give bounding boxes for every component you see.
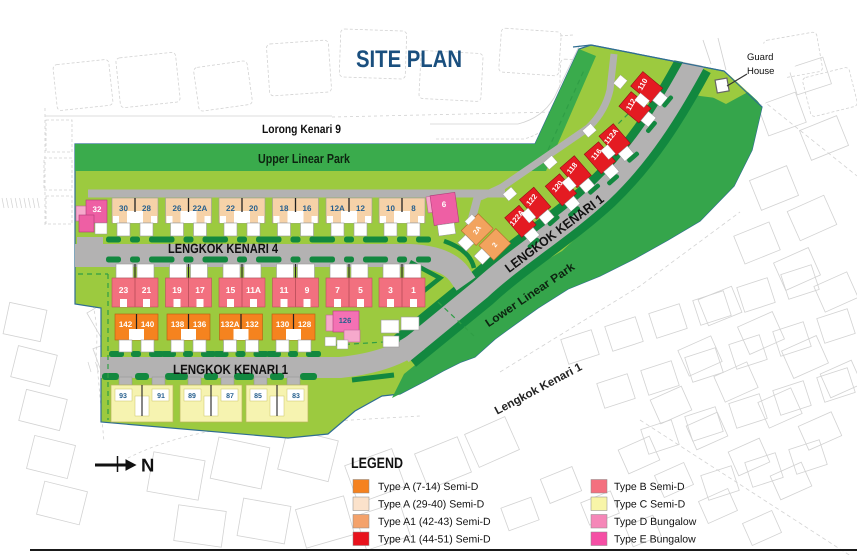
svg-text:LENGKOK KENARI 1: LENGKOK KENARI 1 [173,362,288,377]
svg-text:17: 17 [195,285,205,295]
svg-text:15: 15 [226,285,236,295]
svg-text:3: 3 [388,285,393,295]
svg-text:11A: 11A [246,285,261,295]
svg-text:Type A1 (44-51) Semi-D: Type A1 (44-51) Semi-D [378,534,491,546]
svg-text:Upper Linear Park: Upper Linear Park [258,151,351,166]
svg-text:85: 85 [254,393,262,400]
svg-text:LENGKOK KENARI 4: LENGKOK KENARI 4 [168,241,278,256]
svg-text:132A: 132A [220,320,239,329]
svg-text:8: 8 [411,204,416,213]
svg-text:Type A (7-14) Semi-D: Type A (7-14) Semi-D [378,481,479,493]
svg-text:28: 28 [142,204,151,213]
svg-text:23: 23 [119,285,129,295]
svg-text:Type A1 (42-43) Semi-D: Type A1 (42-43) Semi-D [378,516,491,528]
svg-text:130: 130 [276,320,290,329]
svg-text:12A: 12A [330,204,345,213]
svg-text:1: 1 [411,285,416,295]
svg-text:Type A (29-40) Semi-D: Type A (29-40) Semi-D [378,499,485,511]
svg-text:140: 140 [141,320,155,329]
svg-text:12: 12 [356,204,365,213]
svg-text:87: 87 [226,393,234,400]
svg-text:30: 30 [119,204,128,213]
svg-text:89: 89 [188,393,196,400]
svg-text:126: 126 [339,316,352,325]
svg-text:Type E Bungalow: Type E Bungalow [614,534,696,546]
svg-text:21: 21 [142,285,152,295]
svg-text:6: 6 [442,200,447,209]
svg-text:26: 26 [173,204,182,213]
svg-text:7: 7 [335,285,340,295]
svg-text:19: 19 [172,285,182,295]
svg-text:83: 83 [292,393,300,400]
svg-text:9: 9 [305,285,310,295]
svg-text:16: 16 [303,204,312,213]
svg-text:N: N [141,455,154,476]
svg-text:SITE PLAN: SITE PLAN [356,46,462,73]
svg-text:House: House [747,66,774,77]
svg-text:142: 142 [119,320,133,329]
svg-text:22: 22 [226,204,235,213]
svg-text:128: 128 [298,320,312,329]
svg-text:11: 11 [280,285,289,295]
svg-text:5: 5 [358,285,363,295]
svg-text:22A: 22A [193,204,208,213]
svg-text:Type C Semi-D: Type C Semi-D [614,499,686,511]
svg-text:32: 32 [93,205,102,214]
svg-text:18: 18 [280,204,289,213]
svg-text:Type D Bungalow: Type D Bungalow [614,516,697,528]
svg-text:Guard: Guard [747,52,773,63]
svg-text:LEGEND: LEGEND [351,455,403,472]
svg-text:93: 93 [119,393,127,400]
svg-text:91: 91 [157,393,165,400]
svg-text:Lorong Kenari 9: Lorong Kenari 9 [262,122,341,136]
svg-text:138: 138 [171,320,185,329]
svg-text:136: 136 [193,320,207,329]
svg-text:20: 20 [249,204,258,213]
svg-text:132: 132 [245,320,259,329]
svg-text:10: 10 [386,204,395,213]
svg-text:Type B Semi-D: Type B Semi-D [614,481,685,493]
